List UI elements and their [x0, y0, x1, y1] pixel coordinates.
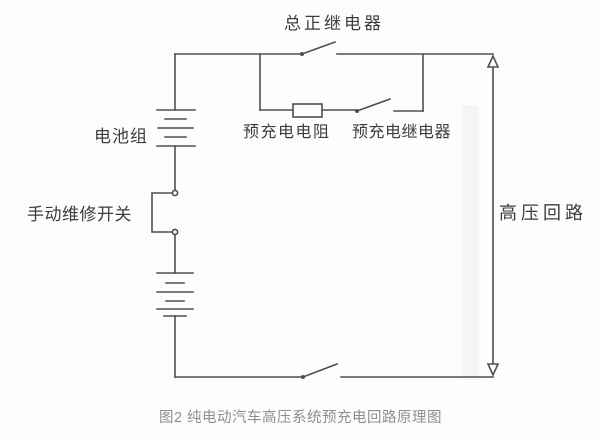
service-plug-loop — [152, 193, 172, 232]
manual-service-switch-symbol — [152, 190, 178, 234]
main-positive-relay-switch — [300, 42, 335, 56]
scan-artifact-band — [462, 105, 479, 380]
switch-blade — [302, 42, 335, 54]
figure-caption: 图2 纯电动汽车高压系统预充电回路原理图 — [0, 410, 601, 427]
precharge-circuit-schematic — [0, 0, 601, 400]
label-battery-pack: 电池组 — [94, 128, 148, 145]
precharge-relay-switch — [355, 99, 390, 113]
precharge-branch — [260, 54, 423, 117]
label-precharge-relay: 预充电继电器 — [352, 125, 451, 141]
arrowhead-up-icon — [488, 56, 498, 67]
high-voltage-loop-rail — [488, 56, 498, 375]
battery-pack-symbol-upper — [157, 110, 195, 146]
arrowhead-down-icon — [488, 364, 498, 375]
precharge-resistor-symbol — [293, 104, 322, 117]
label-precharge-resistor: 预充电电阻 — [243, 125, 331, 141]
label-manual-service-switch: 手动维修开关 — [27, 206, 132, 223]
battery-pack-symbol-lower — [157, 273, 193, 316]
main-negative-relay-switch — [301, 364, 337, 379]
switch-blade — [357, 99, 390, 111]
circuit-figure: 总正继电器 电池组 预充电电阻 预充电继电器 手动维修开关 高压回路 图2 纯电… — [0, 0, 601, 436]
switch-blade — [303, 364, 337, 377]
label-high-voltage-loop: 高压回路 — [499, 204, 587, 222]
label-main-positive-relay: 总正继电器 — [284, 15, 384, 32]
